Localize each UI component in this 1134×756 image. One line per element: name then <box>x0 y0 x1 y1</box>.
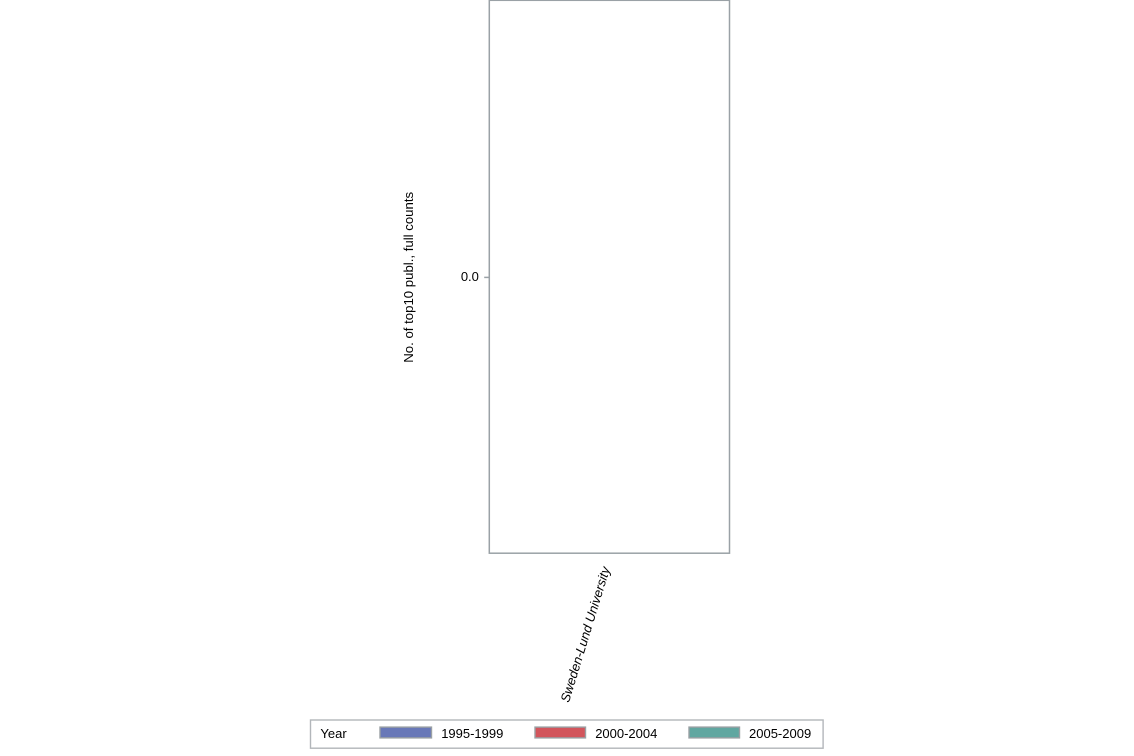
svg-text:1995-1999: 1995-1999 <box>441 726 503 741</box>
svg-text:2000-2004: 2000-2004 <box>595 726 657 741</box>
svg-text:Sweden-Lund University: Sweden-Lund University <box>557 563 613 704</box>
svg-text:No. of top10 publ., full count: No. of top10 publ., full counts <box>401 191 416 362</box>
svg-text:2005-2009: 2005-2009 <box>749 726 811 741</box>
svg-text:0.0: 0.0 <box>461 269 479 284</box>
svg-text:Year: Year <box>320 726 347 741</box>
